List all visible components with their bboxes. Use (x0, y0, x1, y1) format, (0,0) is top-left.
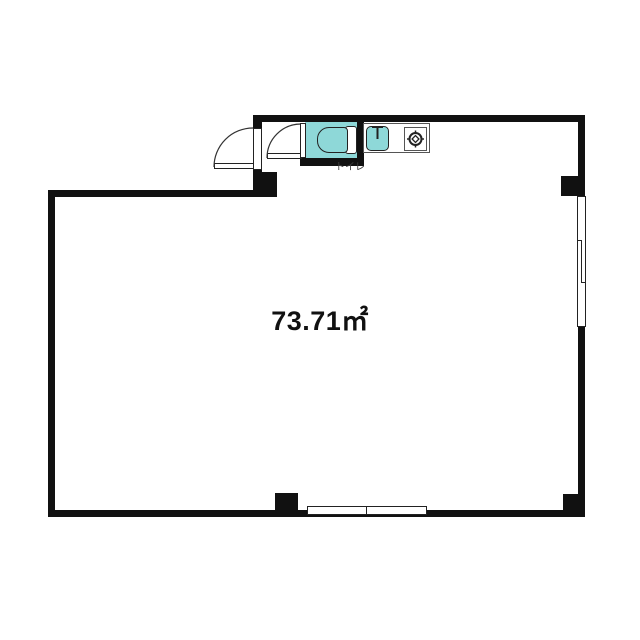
entry-door-swing-icon (210, 124, 258, 172)
window-right-rail (581, 240, 582, 282)
pillar-top-right (561, 176, 585, 196)
faucet-icon (366, 125, 389, 150)
pillar-bottom-center (275, 493, 298, 512)
wall-top-left (48, 190, 277, 197)
gas-burner-icon (404, 127, 427, 151)
toilet-label: トイレ (326, 162, 374, 174)
wall-right-lower (578, 327, 585, 517)
wall-left (48, 190, 55, 517)
window-bottom (307, 506, 427, 515)
wall-right-upper (578, 115, 585, 178)
area-label: 73.71㎡ (245, 306, 395, 336)
toilet-door-leaf (300, 123, 306, 158)
entry-jamb-lower (253, 170, 262, 197)
floor-plan: 73.71㎡ トイレ (0, 0, 640, 640)
toilet-door-swing-icon (263, 120, 305, 162)
toilet-bowl (317, 127, 348, 153)
window-right-tick-upper (578, 240, 582, 241)
entry-door-leaf (253, 128, 262, 170)
window-right-tick-lower (581, 282, 585, 283)
window-bottom-rail (366, 507, 367, 514)
toilet-icon (315, 124, 359, 156)
